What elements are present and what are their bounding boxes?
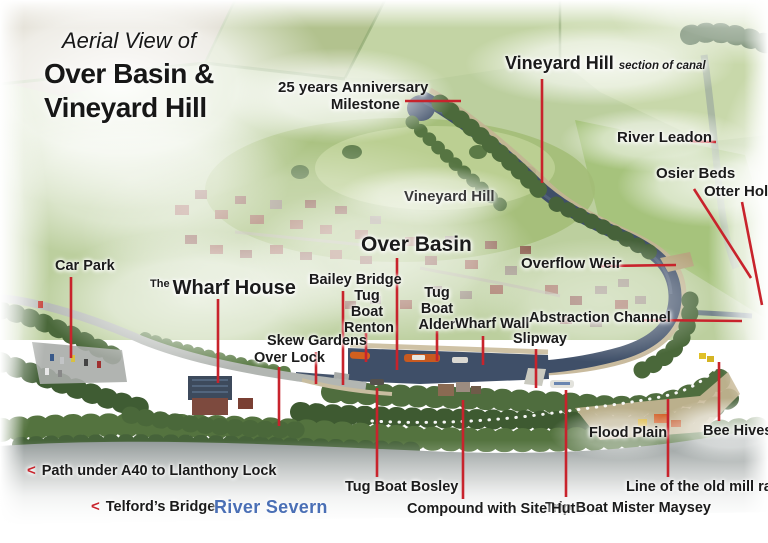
label-vineyard-hill: Vineyard Hill [404, 189, 495, 206]
label-car-park: Car Park [55, 258, 115, 274]
label-compound: Compound with Site Hut [407, 501, 575, 517]
title-line1: Over Basin & [44, 57, 214, 91]
label-river-severn: River Severn [214, 497, 328, 517]
red-arrow-icon: < [91, 498, 98, 515]
label-wharf-house: TheWharf House [150, 277, 296, 299]
aerial-view-map: Aerial View of Over Basin & Vineyard Hil… [0, 0, 768, 543]
label-telfords-bridge: <Telford’s Bridge [91, 499, 215, 516]
title-prefix: Aerial View of [62, 28, 214, 54]
label-osier-beds: Osier Beds [656, 166, 735, 183]
label-tug-boat-alder: Tug Boat Alder [414, 285, 460, 334]
label-milestone: 25 years Anniversary Milestone [278, 80, 400, 114]
bee-hive-boxes [699, 353, 714, 362]
red-arrow-icon: < [27, 462, 34, 479]
label-tug-boat-renton: Tug Boat Renton [344, 288, 390, 337]
label-over-basin: Over Basin [361, 233, 472, 257]
label-abstraction-channel: Abstraction Channel [529, 310, 671, 326]
label-flood-plain: Flood Plain [589, 425, 667, 441]
label-bee-hives: Bee Hives [703, 423, 768, 439]
label-river-leadon: River Leadon [617, 130, 712, 147]
label-slipway: Slipway [513, 331, 567, 347]
label-otter-holt: Otter Holt [704, 184, 768, 201]
label-overflow-weir: Overflow Weir [521, 256, 622, 273]
label-skew-gardens: Skew Gardens [267, 333, 367, 349]
wharf-house-building [188, 376, 253, 415]
label-old-mill-race: Line of the old mill race [626, 479, 768, 495]
label-wharf-wall: Wharf Wall [455, 316, 529, 332]
label-vineyard-hill-section: Vineyard Hillsection of canal [505, 53, 706, 73]
label-path-a40: <Path under A40 to Llanthony Lock [27, 463, 276, 480]
label-tug-boat-bosley: Tug Boat Bosley [345, 479, 458, 495]
map-title: Aerial View of Over Basin & Vineyard Hil… [44, 28, 214, 125]
title-line2: Vineyard Hill [44, 91, 214, 125]
label-over-lock: Over Lock [254, 350, 325, 366]
label-bailey-bridge: Bailey Bridge [309, 272, 402, 288]
